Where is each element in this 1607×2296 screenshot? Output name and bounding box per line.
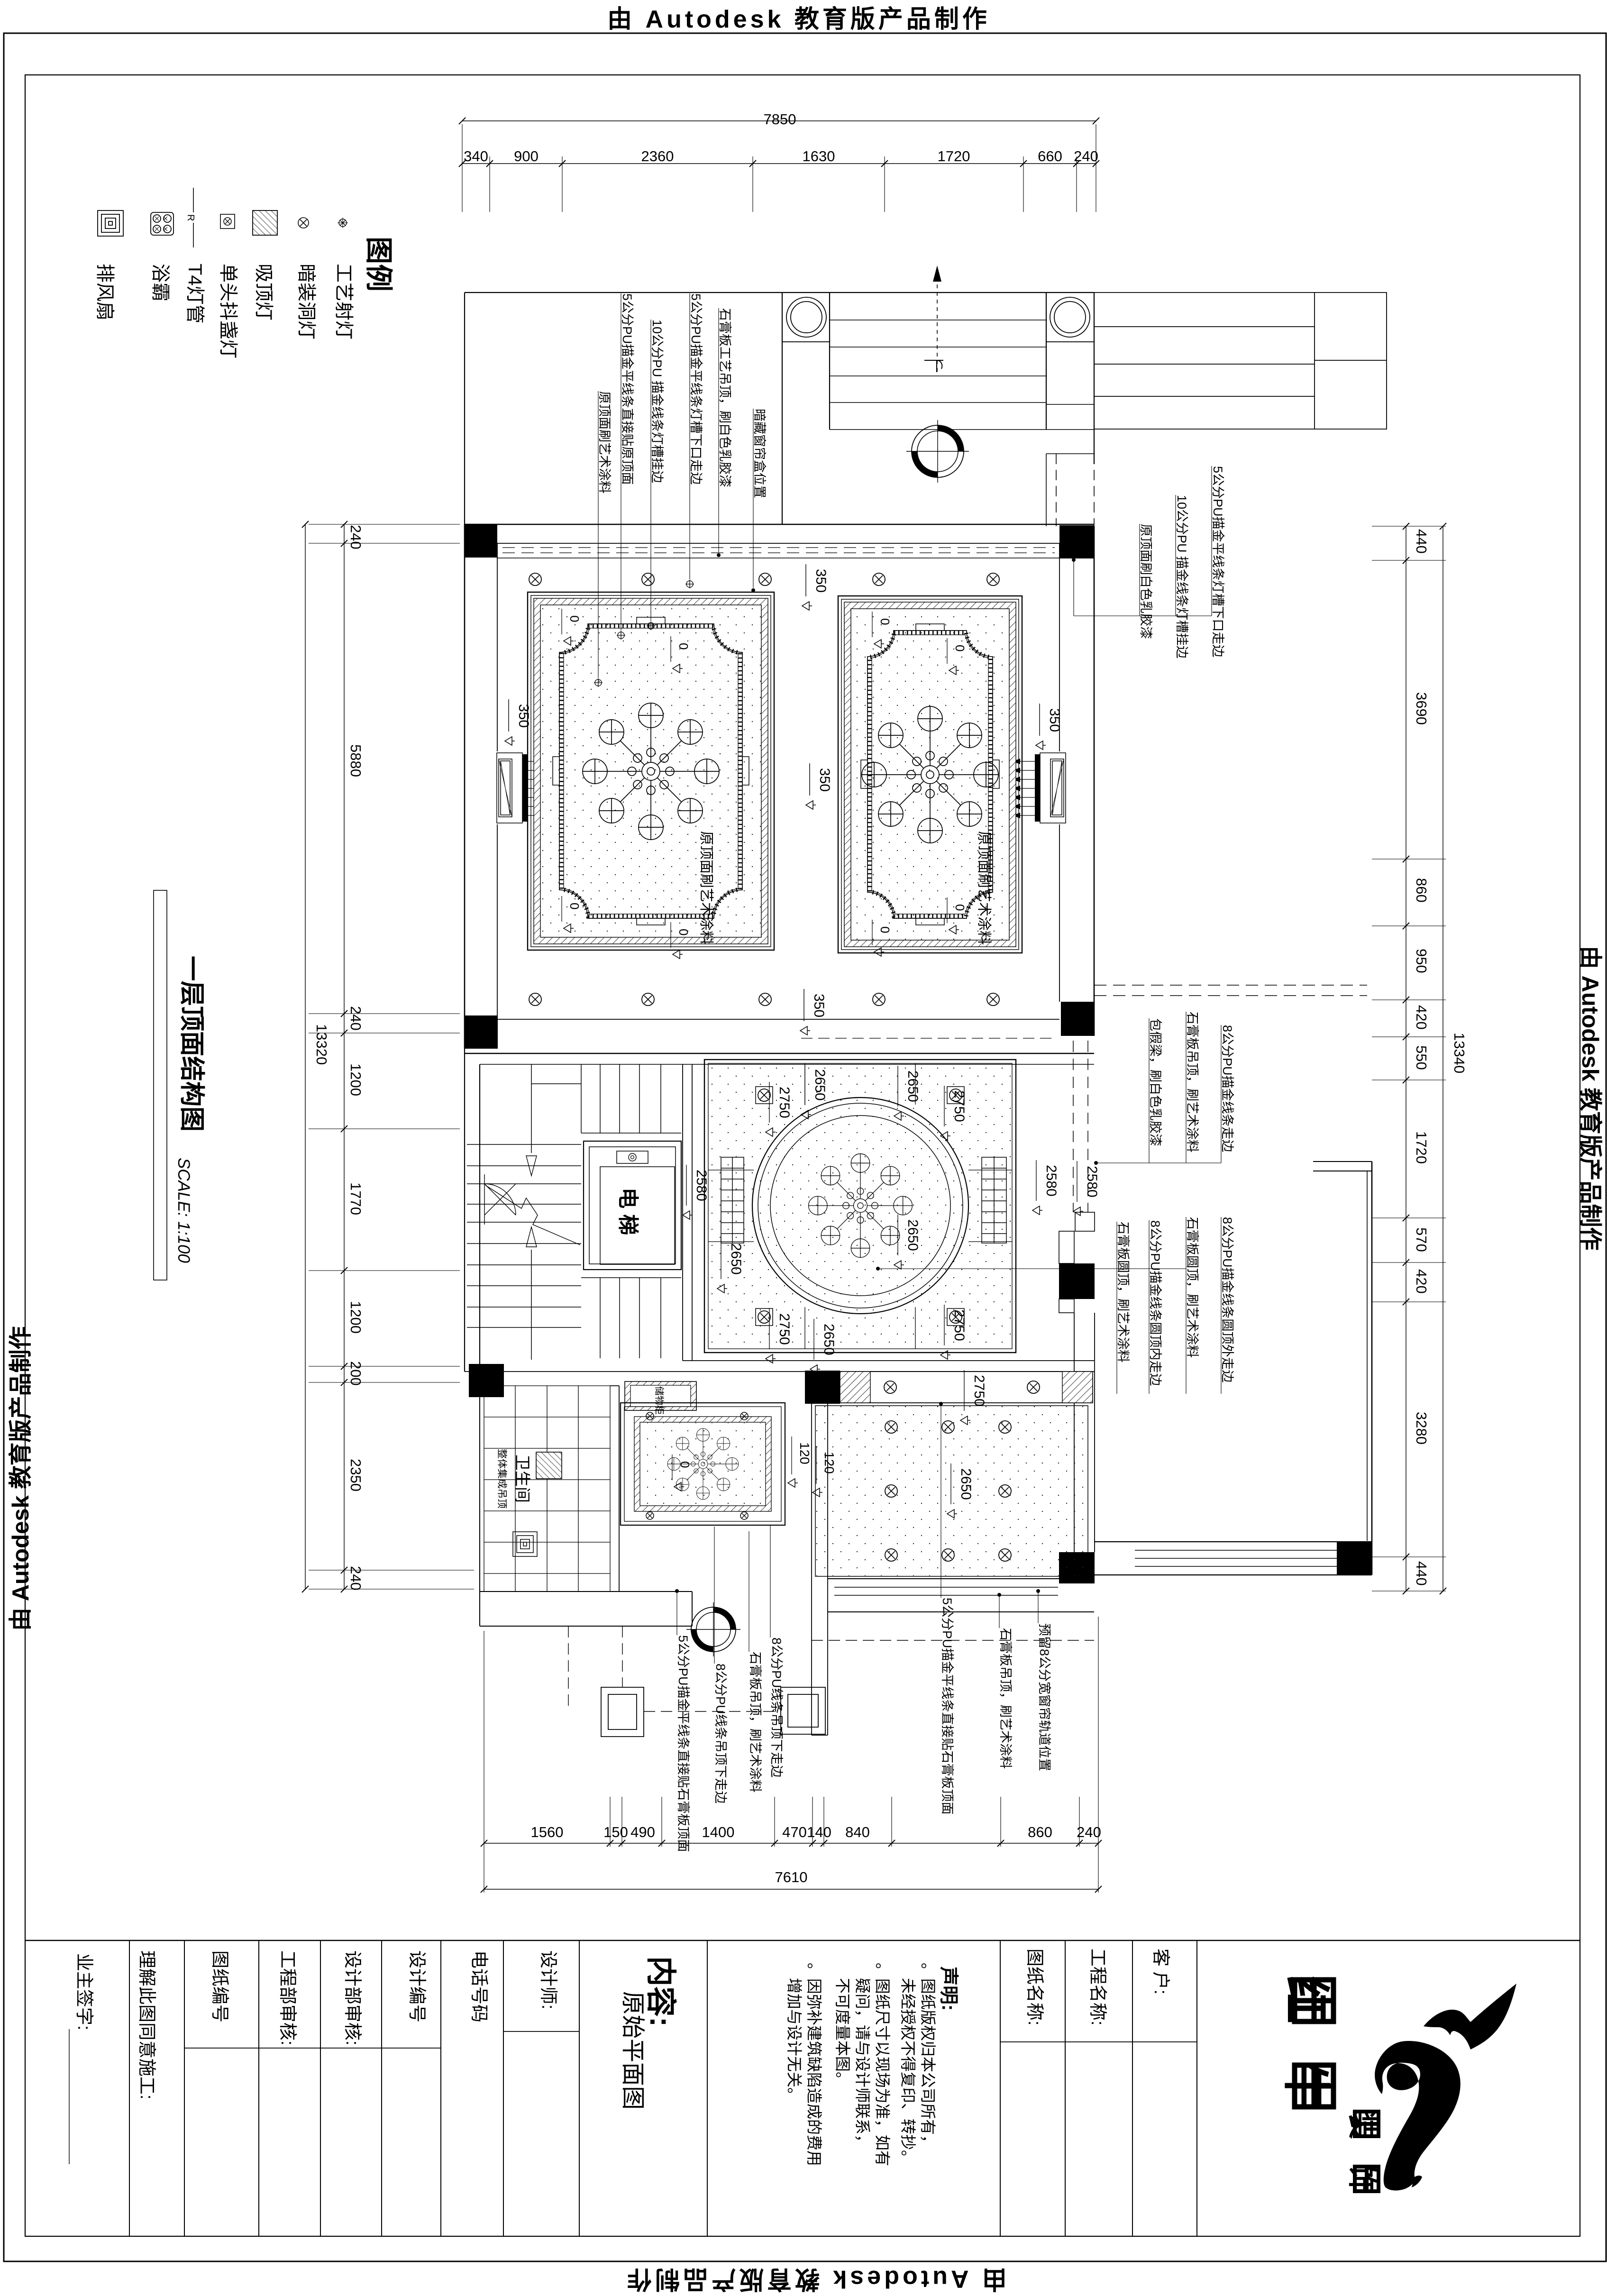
svg-text:420: 420 xyxy=(1413,1005,1430,1030)
svg-text:340: 340 xyxy=(464,148,488,165)
svg-text:120: 120 xyxy=(797,1442,812,1464)
svg-text:石膏板吊顶，刷艺术涂料: 石膏板吊顶，刷艺术涂料 xyxy=(1185,1012,1199,1153)
svg-text:10公分PU 描金线条灯槽挂边: 10公分PU 描金线条灯槽挂边 xyxy=(650,320,664,483)
svg-text:2360: 2360 xyxy=(641,148,674,165)
svg-text:1720: 1720 xyxy=(1413,1131,1430,1164)
svg-text:理解此图同意施工:: 理解此图同意施工: xyxy=(137,1950,156,2100)
svg-text:由 Autodesk 教育版产品制作: 由 Autodesk 教育版产品制作 xyxy=(1577,946,1603,1250)
svg-text:13320: 13320 xyxy=(313,1024,330,1065)
svg-text:470: 470 xyxy=(782,1824,807,1840)
svg-text:图例: 图例 xyxy=(363,237,394,292)
svg-text:吸顶灯: 吸顶灯 xyxy=(253,264,274,320)
svg-text:240: 240 xyxy=(347,525,364,549)
svg-text:440: 440 xyxy=(1413,1561,1430,1586)
svg-text:增加与设计无关。: 增加与设计无关。 xyxy=(785,1978,803,2103)
svg-text:0: 0 xyxy=(567,903,582,909)
svg-text:SCALE: 1:100: SCALE: 1:100 xyxy=(174,1158,193,1263)
svg-text:5公分PU描金平线条直接贴原顶面: 5公分PU描金平线条直接贴原顶面 xyxy=(620,293,634,485)
svg-text:420: 420 xyxy=(1413,1269,1430,1294)
svg-text:单头抖盏灯: 单头抖盏灯 xyxy=(218,264,238,358)
svg-text:浴霸: 浴霸 xyxy=(150,264,171,302)
svg-text:T4灯管: T4灯管 xyxy=(184,264,205,324)
svg-text:2650: 2650 xyxy=(958,1468,974,1500)
svg-text:预留8公分宽窗帘轨道位置: 预留8公分宽窗帘轨道位置 xyxy=(1037,1623,1051,1771)
svg-text:石膏板圆顶，刷艺术涂料: 石膏板圆顶，刷艺术涂料 xyxy=(1116,1222,1130,1363)
svg-text:200: 200 xyxy=(347,1361,364,1386)
svg-text:。图纸尺寸以现场为准，如有: 。图纸尺寸以现场为准，如有 xyxy=(874,1963,891,2166)
svg-text:石膏板吊顶，刷艺术涂料: 石膏板吊顶，刷艺术涂料 xyxy=(748,1652,762,1793)
svg-text:2650: 2650 xyxy=(812,1069,828,1101)
svg-text:0: 0 xyxy=(676,929,691,935)
svg-text:2750: 2750 xyxy=(971,1375,987,1407)
svg-text:由 Autodesk 教育版产品制作: 由 Autodesk 教育版产品制作 xyxy=(607,6,990,33)
svg-text:未经授权不得复印、转抄。: 未经授权不得复印、转抄。 xyxy=(899,1978,917,2166)
svg-text:5公分PU描金平线条直接贴石膏板顶面: 5公分PU描金平线条直接贴石膏板顶面 xyxy=(940,1598,954,1815)
svg-text:业主签字:: 业主签字: xyxy=(74,1953,94,2031)
svg-text:0: 0 xyxy=(953,645,967,651)
svg-text:1770: 1770 xyxy=(347,1182,364,1215)
svg-text:2650: 2650 xyxy=(905,1219,921,1251)
svg-text:暗装洞灯: 暗装洞灯 xyxy=(296,264,317,339)
svg-text:包假梁，刷白色乳胶漆: 包假梁，刷白色乳胶漆 xyxy=(1148,1018,1162,1146)
svg-text:5公分PU描金平线条直接贴石膏板顶面: 5公分PU描金平线条直接贴石膏板顶面 xyxy=(676,1635,690,1852)
svg-text:原顶面刷艺术涂料: 原顶面刷艺术涂料 xyxy=(976,831,992,945)
svg-text:图纸编号: 图纸编号 xyxy=(210,1950,229,2022)
svg-text:2580: 2580 xyxy=(694,1170,709,1201)
svg-text:石膏板吊顶，刷艺术涂料: 石膏板吊顶，刷艺术涂料 xyxy=(998,1628,1013,1769)
svg-text:工艺射灯: 工艺射灯 xyxy=(333,264,354,339)
svg-text:8公分PU线条吊顶下走边: 8公分PU线条吊顶下走边 xyxy=(713,1664,728,1804)
svg-text:石膏板圆顶，刷艺术涂料: 石膏板圆顶，刷艺术涂料 xyxy=(1185,1217,1199,1358)
svg-text:140: 140 xyxy=(807,1824,831,1840)
svg-text:0: 0 xyxy=(678,1461,692,1468)
svg-text:8公分PU描金线条圆顶外走边: 8公分PU描金线条圆顶外走边 xyxy=(1220,1217,1234,1383)
svg-text:储物柜: 储物柜 xyxy=(654,1386,665,1415)
svg-text:卫生间: 卫生间 xyxy=(513,1454,531,1503)
svg-text:5公分PU描金平线条灯槽下口走边: 5公分PU描金平线条灯槽下口走边 xyxy=(1211,466,1225,658)
svg-text:240: 240 xyxy=(347,1566,364,1591)
svg-text:1560: 1560 xyxy=(531,1824,564,1840)
svg-text:2750: 2750 xyxy=(776,1087,792,1118)
svg-text:石膏板工艺吊顶，刷白色乳胶漆: 石膏板工艺吊顶，刷白色乳胶漆 xyxy=(718,308,732,487)
svg-text:工程部审核:: 工程部审核: xyxy=(277,1950,297,2046)
svg-text:客 户:: 客 户: xyxy=(1150,1948,1170,1994)
svg-text:570: 570 xyxy=(1413,1227,1430,1252)
svg-text:7850: 7850 xyxy=(764,111,796,128)
svg-text:疑问，请与设计师联系，: 疑问，请与设计师联系， xyxy=(854,1978,871,2150)
svg-text:2750: 2750 xyxy=(776,1313,792,1345)
svg-text:内容:: 内容: xyxy=(644,1956,678,2027)
svg-text:不可度量本图。: 不可度量本图。 xyxy=(834,1978,851,2087)
svg-text:由 Autodesk 教育版产品制作: 由 Autodesk 教育版产品制作 xyxy=(8,1326,34,1631)
svg-text:8公分PU线条吊顶下走边: 8公分PU线条吊顶下走边 xyxy=(769,1637,784,1778)
svg-text:350: 350 xyxy=(1047,708,1062,732)
svg-text:。图纸版权归本公司所有，: 。图纸版权归本公司所有， xyxy=(919,1963,937,2150)
svg-text:2650: 2650 xyxy=(728,1243,744,1275)
svg-text:0: 0 xyxy=(878,618,892,625)
svg-text:660: 660 xyxy=(1038,148,1062,165)
svg-text:0: 0 xyxy=(676,643,691,649)
svg-text:350: 350 xyxy=(811,994,827,1017)
svg-text:3690: 3690 xyxy=(1413,692,1430,725)
svg-text:240: 240 xyxy=(347,1006,364,1031)
svg-text:电 梯: 电 梯 xyxy=(616,1188,639,1235)
svg-text:1200: 1200 xyxy=(347,1301,364,1334)
svg-text:声明:: 声明: xyxy=(938,1967,959,2011)
svg-text:550: 550 xyxy=(1413,1045,1430,1070)
svg-text:7610: 7610 xyxy=(775,1869,808,1885)
svg-text:440: 440 xyxy=(1413,529,1430,554)
svg-text:950: 950 xyxy=(1413,949,1430,973)
svg-text:。因弥补建筑缺陷造成的费用: 。因弥补建筑缺陷造成的费用 xyxy=(805,1963,823,2166)
svg-text:原顶面刷白色乳胶漆: 原顶面刷白色乳胶漆 xyxy=(1139,524,1153,639)
svg-text:5880: 5880 xyxy=(347,744,364,777)
svg-text:原始平面图: 原始平面图 xyxy=(620,1991,646,2110)
svg-text:1200: 1200 xyxy=(347,1063,364,1096)
svg-text:2580: 2580 xyxy=(1043,1165,1059,1197)
svg-text:2350: 2350 xyxy=(347,1459,364,1491)
svg-text:5公分PU描金平线条灯槽下口走边: 5公分PU描金平线条灯槽下口走边 xyxy=(689,293,703,485)
svg-text:设计师:: 设计师: xyxy=(538,1950,558,2010)
svg-text:排风扇: 排风扇 xyxy=(94,264,115,320)
svg-text:350: 350 xyxy=(516,704,531,728)
svg-text:0: 0 xyxy=(953,904,967,911)
svg-text:0: 0 xyxy=(567,615,582,622)
svg-text:240: 240 xyxy=(1077,1824,1101,1840)
svg-text:8公分PU描金线条圆顶内走边: 8公分PU描金线条圆顶内走边 xyxy=(1148,1220,1162,1386)
svg-text:1400: 1400 xyxy=(702,1824,735,1840)
svg-text:0: 0 xyxy=(878,926,892,933)
svg-text:240: 240 xyxy=(1074,148,1098,165)
svg-text:整体集成吊顶: 整体集成吊顶 xyxy=(496,1449,507,1509)
svg-text:150: 150 xyxy=(603,1824,628,1840)
svg-text:860: 860 xyxy=(1413,878,1430,903)
svg-text:2580: 2580 xyxy=(1084,1166,1100,1198)
svg-text:490: 490 xyxy=(630,1824,655,1840)
svg-text:2750: 2750 xyxy=(951,1090,967,1122)
svg-text:由 Autodesk 教育版产品制作: 由 Autodesk 教育版产品制作 xyxy=(624,2265,1007,2293)
svg-text:设计编号: 设计编号 xyxy=(407,1950,427,2022)
svg-text:2650: 2650 xyxy=(905,1070,921,1102)
svg-text:860: 860 xyxy=(1028,1824,1052,1840)
svg-text:1630: 1630 xyxy=(803,148,835,165)
svg-text:2750: 2750 xyxy=(951,1309,967,1341)
svg-text:8公分PU描金线条走边: 8公分PU描金线条走边 xyxy=(1220,1025,1234,1153)
svg-text:设计部审核:: 设计部审核: xyxy=(342,1950,362,2046)
svg-text:电话号码: 电话号码 xyxy=(469,1950,489,2022)
svg-text:暗藏窗帘盒位置: 暗藏窗帘盒位置 xyxy=(752,409,767,498)
svg-text:900: 900 xyxy=(514,148,539,165)
svg-text:13340: 13340 xyxy=(1451,1033,1468,1073)
svg-text:图纸名称:: 图纸名称: xyxy=(1024,1948,1044,2026)
svg-text:10公分PU 描金线条灯槽挂边: 10公分PU 描金线条灯槽挂边 xyxy=(1175,495,1189,659)
svg-text:350: 350 xyxy=(813,569,829,593)
svg-text:1720: 1720 xyxy=(938,148,970,165)
svg-text:3280: 3280 xyxy=(1413,1412,1430,1445)
svg-text:R: R xyxy=(185,214,196,221)
svg-text:工程名称:: 工程名称: xyxy=(1087,1948,1107,2026)
svg-text:840: 840 xyxy=(845,1824,870,1840)
svg-text:原顶面刷艺术涂料: 原顶面刷艺术涂料 xyxy=(597,391,612,494)
svg-text:2650: 2650 xyxy=(821,1324,837,1355)
svg-text:一层顶面结构图: 一层顶面结构图 xyxy=(178,956,206,1132)
svg-text:350: 350 xyxy=(817,768,832,792)
svg-text:原顶面刷艺术涂料: 原顶面刷艺术涂料 xyxy=(698,831,714,945)
